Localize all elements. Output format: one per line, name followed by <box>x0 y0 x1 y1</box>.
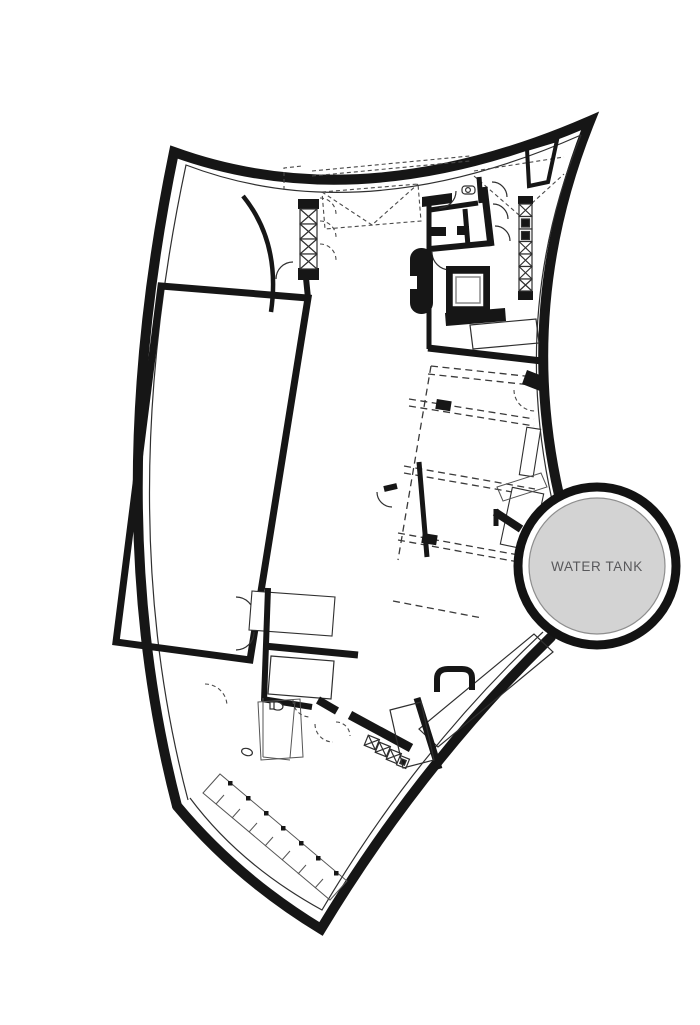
elevator-core <box>404 248 506 326</box>
entrance-area <box>243 166 336 312</box>
kitchen-equipment-strip <box>518 196 533 300</box>
wc-fixtures <box>241 701 284 757</box>
deck-panel-ticks <box>216 795 323 888</box>
water-tank: WATER TANK <box>518 487 676 645</box>
floor-plan: WATER TANK <box>0 0 700 1025</box>
glazed-entrance-shaft <box>298 198 336 280</box>
floor-plan-page: WATER TANK <box>0 0 700 1025</box>
shell-inner-line <box>149 135 581 800</box>
stair-upper <box>428 319 542 361</box>
water-tank-label: WATER TANK <box>551 559 643 574</box>
curved-wall-hook <box>437 669 472 692</box>
lower-core <box>249 588 358 707</box>
stair-lower <box>268 656 334 699</box>
toilet-fixture <box>462 186 475 194</box>
